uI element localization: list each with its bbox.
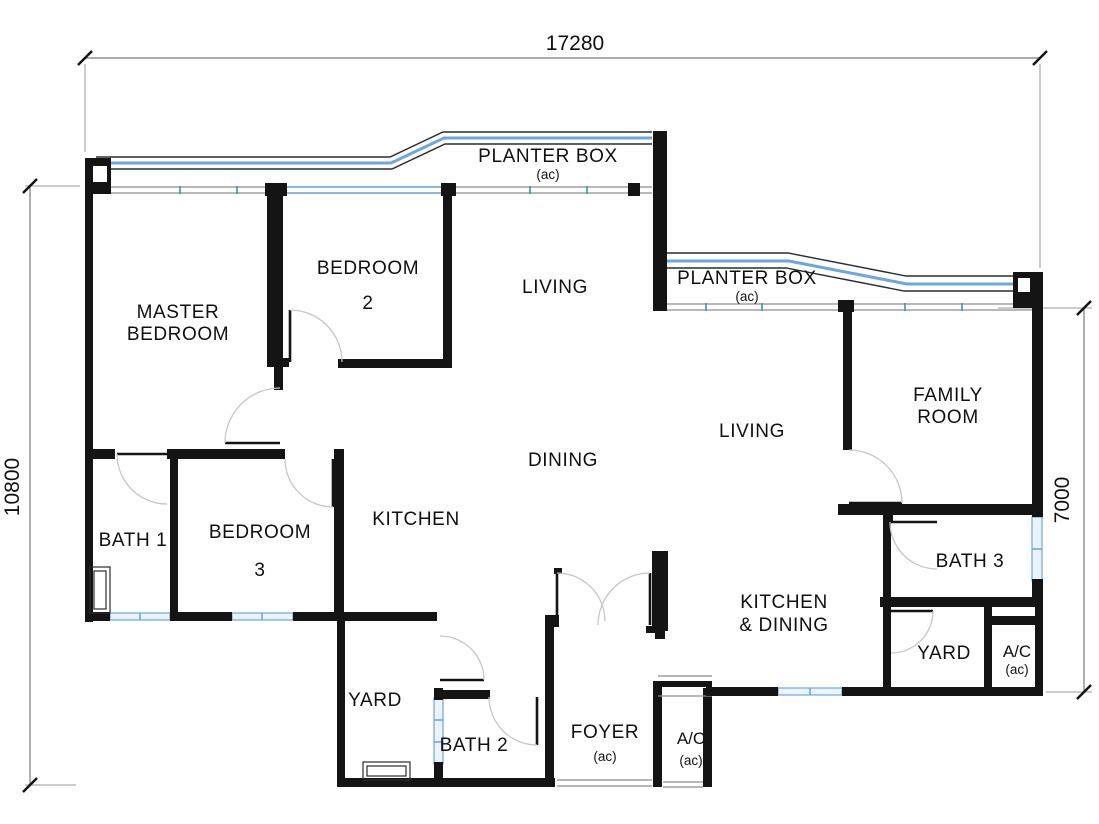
window-bath3 <box>1032 517 1042 581</box>
dimension-height-right-label: 7000 <box>1051 477 1074 524</box>
label-ac-right-ac: (ac) <box>1005 662 1028 677</box>
label-bedroom3-2: 3 <box>254 560 265 581</box>
label-living-right: LIVING <box>719 421 785 442</box>
label-yard-right: YARD <box>917 643 971 664</box>
label-living-left: LIVING <box>522 277 588 298</box>
label-kitchen-dining-2: & DINING <box>739 615 828 636</box>
label-family-room-1: FAMILY <box>913 385 983 406</box>
label-bedroom3-1: BEDROOM <box>209 522 311 543</box>
floor-plan-drawing: 17280 10800 7000 PLANTER BOX (ac) PLANTE… <box>0 0 1099 824</box>
label-planter-box-top-ac: (ac) <box>536 167 559 182</box>
label-bath2: BATH 2 <box>440 735 509 756</box>
label-bath1: BATH 1 <box>99 530 168 551</box>
label-planter-box-right-ac: (ac) <box>735 289 758 304</box>
labels: 17280 10800 7000 PLANTER BOX (ac) PLANTE… <box>1 32 1074 768</box>
window-kitchen-dining <box>778 688 842 695</box>
label-master-bedroom-2: BEDROOM <box>127 324 229 345</box>
label-foyer: FOYER <box>571 722 639 743</box>
label-bath3: BATH 3 <box>936 551 1005 572</box>
fixtures <box>90 567 410 780</box>
label-dining: DINING <box>528 450 598 471</box>
label-bedroom2-2: 2 <box>362 293 373 314</box>
label-ac-bottom-ac: (ac) <box>679 753 702 768</box>
label-planter-box-top: PLANTER BOX <box>478 146 618 167</box>
window-band-top <box>108 186 652 194</box>
dimension-width-label: 17280 <box>546 32 604 55</box>
label-kitchen: KITCHEN <box>372 509 460 530</box>
label-ac-right: A/C <box>1003 642 1031 661</box>
label-foyer-ac: (ac) <box>593 749 616 764</box>
dimension-height-left-label: 10800 <box>1 458 24 516</box>
floor-plan-canvas: 17280 10800 7000 PLANTER BOX (ac) PLANTE… <box>0 0 1099 824</box>
label-yard-left: YARD <box>348 690 402 711</box>
label-kitchen-dining-1: KITCHEN <box>740 592 828 613</box>
label-planter-box-right: PLANTER BOX <box>677 268 817 289</box>
label-family-room-2: ROOM <box>917 407 979 428</box>
label-ac-bottom: A/C <box>677 729 705 748</box>
label-master-bedroom-1: MASTER <box>137 302 220 323</box>
label-bedroom2-1: BEDROOM <box>317 258 419 279</box>
